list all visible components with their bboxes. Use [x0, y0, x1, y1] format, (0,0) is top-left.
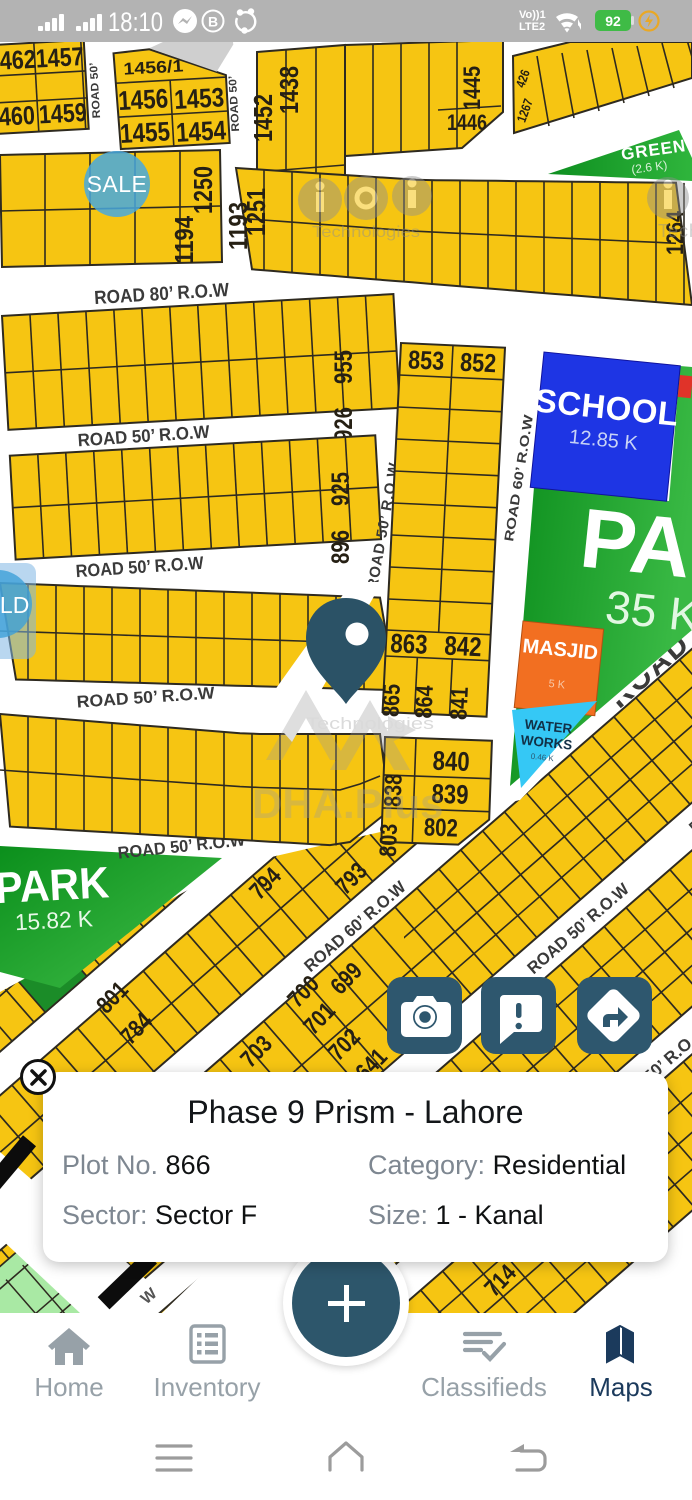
svg-text:1454: 1454 — [175, 115, 227, 148]
svg-text:1446: 1446 — [447, 110, 487, 135]
svg-text:1456: 1456 — [117, 83, 169, 116]
svg-text:1455: 1455 — [119, 116, 171, 149]
svg-text:1456/1: 1456/1 — [123, 56, 184, 78]
svg-text:896: 896 — [327, 530, 355, 564]
svg-text:1459: 1459 — [38, 97, 88, 130]
svg-text:842: 842 — [444, 631, 482, 663]
svg-text:1453: 1453 — [173, 82, 225, 115]
svg-text:SALE: SALE — [87, 171, 148, 197]
svg-text:841: 841 — [445, 686, 474, 720]
svg-text:925: 925 — [327, 472, 355, 506]
svg-text:840: 840 — [432, 746, 470, 777]
svg-text:92: 92 — [605, 13, 621, 29]
svg-text:B: B — [208, 14, 218, 30]
svg-text:15.82 K: 15.82 K — [14, 905, 94, 935]
svg-text:1251: 1251 — [241, 188, 271, 236]
svg-text:Technologies: Technologies — [306, 714, 434, 733]
svg-text:18:10: 18:10 — [108, 7, 163, 37]
svg-text:1457: 1457 — [35, 41, 85, 74]
svg-text:Classifieds: Classifieds — [421, 1372, 547, 1402]
svg-text:853: 853 — [407, 344, 444, 376]
svg-text:Technologies: Technologies — [312, 224, 420, 241]
svg-text:PARK: PARK — [0, 858, 110, 913]
svg-text:955: 955 — [330, 350, 358, 384]
svg-text:1438: 1438 — [274, 66, 304, 114]
svg-text:35 K: 35 K — [603, 580, 692, 642]
svg-text:Techn: Techn — [658, 221, 692, 241]
svg-text:1250: 1250 — [188, 166, 218, 214]
svg-text:1194: 1194 — [169, 216, 199, 264]
svg-text:SOLD: SOLD — [0, 592, 29, 618]
svg-text:1462: 1462 — [0, 44, 37, 77]
svg-text:Maps: Maps — [589, 1372, 653, 1402]
svg-text:Home: Home — [34, 1372, 103, 1402]
svg-text:LTE2: LTE2 — [519, 21, 545, 33]
svg-text:1460: 1460 — [0, 100, 36, 133]
svg-text:1445: 1445 — [459, 66, 486, 110]
svg-text:863: 863 — [390, 628, 428, 660]
svg-text:Vo))1: Vo))1 — [519, 9, 546, 21]
svg-text:852: 852 — [459, 347, 496, 379]
svg-text:Inventory: Inventory — [154, 1372, 261, 1402]
svg-text:803: 803 — [375, 823, 403, 857]
svg-text:DHA.Plus: DHA.Plus — [252, 780, 443, 827]
svg-text:5 K: 5 K — [548, 678, 566, 692]
svg-text:865: 865 — [377, 683, 406, 717]
